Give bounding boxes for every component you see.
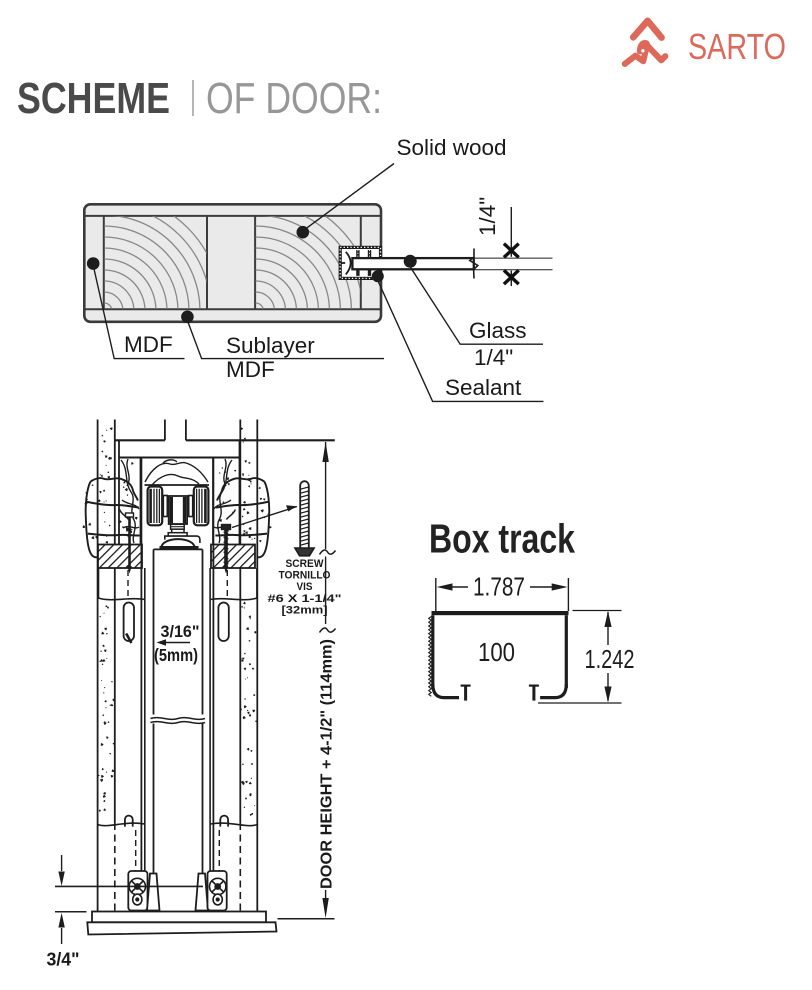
svg-text:1/4": 1/4" xyxy=(474,345,513,370)
svg-text:100: 100 xyxy=(478,637,515,667)
svg-text:OF DOOR:: OF DOOR: xyxy=(206,75,382,123)
svg-text:DOOR HEIGHT + 4-1/2" (114m: DOOR HEIGHT + 4-1/2" (114mm) xyxy=(319,639,336,889)
svg-text:(5mm): (5mm) xyxy=(154,645,198,665)
svg-text:Sealant: Sealant xyxy=(445,375,522,400)
svg-text:[32mm]: [32mm] xyxy=(282,604,328,616)
svg-text:SARTO: SARTO xyxy=(688,26,786,67)
svg-text:MDF: MDF xyxy=(226,357,275,382)
svg-text:Sublayer: Sublayer xyxy=(226,333,315,358)
svg-text:#6 X 1-1/4": #6 X 1-1/4" xyxy=(268,593,342,605)
svg-text:1.787: 1.787 xyxy=(473,572,525,602)
svg-text:1/4": 1/4" xyxy=(475,197,500,236)
svg-text:SCHEME: SCHEME xyxy=(17,75,170,123)
svg-text:3/16": 3/16" xyxy=(161,623,200,641)
svg-text:VIS: VIS xyxy=(297,581,313,593)
svg-text:Box track: Box track xyxy=(429,516,575,562)
svg-text:Solid wood: Solid wood xyxy=(397,135,507,160)
svg-text:TORNILLO: TORNILLO xyxy=(279,570,331,582)
svg-text:SCREW: SCREW xyxy=(286,558,325,570)
svg-text:Glass: Glass xyxy=(469,318,527,343)
svg-text:MDF: MDF xyxy=(124,332,173,357)
svg-text:3/4": 3/4" xyxy=(47,950,80,970)
svg-text:1.242: 1.242 xyxy=(585,644,635,674)
